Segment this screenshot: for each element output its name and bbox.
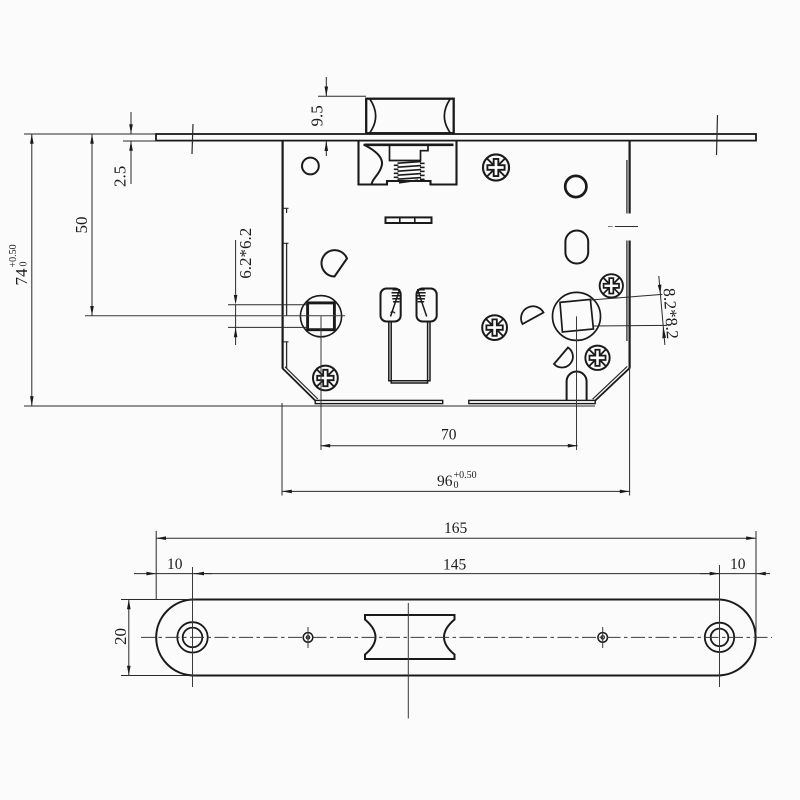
- svg-text:165: 165: [444, 520, 468, 537]
- svg-text:0: 0: [454, 480, 459, 491]
- svg-text:10: 10: [167, 556, 183, 573]
- svg-text:70: 70: [441, 427, 457, 444]
- svg-text:50: 50: [72, 217, 91, 234]
- svg-text:10: 10: [730, 556, 746, 573]
- svg-text:74: 74: [12, 268, 31, 286]
- svg-text:20: 20: [111, 628, 130, 645]
- svg-text:0: 0: [19, 262, 30, 267]
- svg-text:145: 145: [443, 557, 467, 574]
- svg-text:8.2*8.2: 8.2*8.2: [660, 287, 683, 339]
- svg-text:9.5: 9.5: [308, 105, 327, 126]
- svg-text:6.2*6.2: 6.2*6.2: [236, 228, 255, 279]
- svg-text:96: 96: [437, 473, 453, 490]
- svg-text:+0.50: +0.50: [8, 244, 19, 267]
- svg-text:2.5: 2.5: [111, 166, 130, 187]
